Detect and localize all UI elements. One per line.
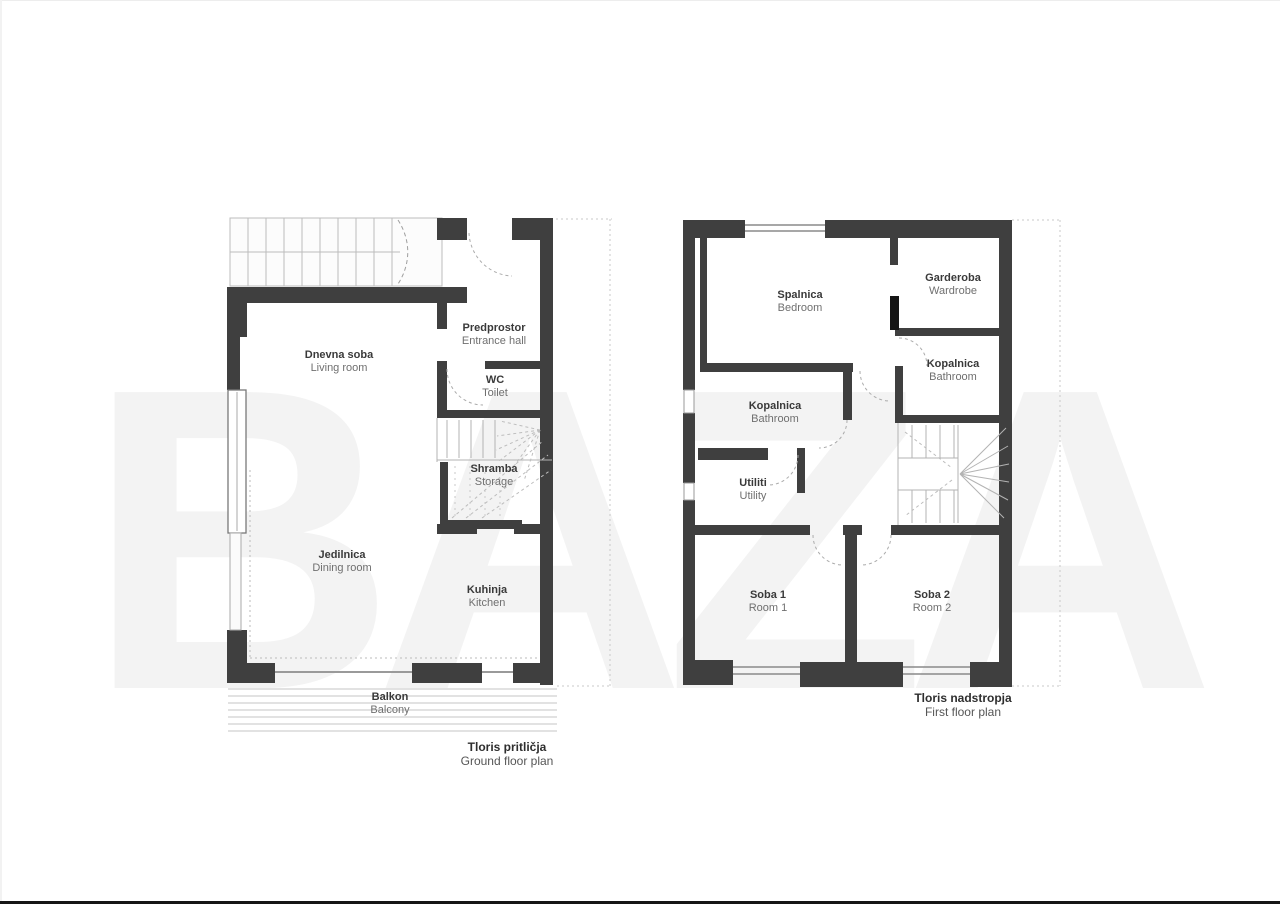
room-label-kitchen: Kuhinja Kitchen bbox=[467, 584, 507, 610]
room-label-bathroom-left: Kopalnica Bathroom bbox=[749, 400, 802, 426]
ground-floor-plan bbox=[227, 218, 612, 731]
exterior-stairs bbox=[230, 218, 442, 286]
first-floor-plan bbox=[683, 220, 1062, 687]
room-label-wardrobe: Garderoba Wardrobe bbox=[925, 272, 981, 298]
flue-element bbox=[890, 296, 899, 330]
room-label-room2: Soba 2 Room 2 bbox=[913, 589, 952, 615]
site-boundary-right bbox=[1012, 220, 1062, 686]
room-label-bathroom-right: Kopalnica Bathroom bbox=[927, 358, 980, 384]
winder-staircase bbox=[898, 423, 1009, 525]
room-label-wc: WC Toilet bbox=[482, 374, 508, 400]
site-boundary-left bbox=[556, 219, 612, 686]
projection-lines bbox=[250, 470, 540, 658]
room-label-room1: Soba 1 Room 1 bbox=[749, 589, 788, 615]
room-label-entrance: Predprostor Entrance hall bbox=[462, 322, 526, 348]
room-label-living: Dnevna soba Living room bbox=[305, 349, 373, 375]
floor-plan-drawing bbox=[0, 0, 1280, 904]
room-label-dining: Jedilnica Dining room bbox=[312, 549, 371, 575]
ground-floor-caption: Tloris pritličja Ground floor plan bbox=[461, 740, 554, 768]
room-label-utility: Utiliti Utility bbox=[739, 477, 767, 503]
ground-floor-walls bbox=[227, 218, 553, 685]
room-label-bedroom: Spalnica Bedroom bbox=[777, 289, 822, 315]
room-label-storage: Shramba Storage bbox=[470, 463, 517, 489]
floor-plan-page: BAZA bbox=[0, 0, 1280, 904]
room-label-balcony: Balkon Balcony bbox=[370, 691, 409, 717]
first-floor-caption: Tloris nadstropja First floor plan bbox=[914, 691, 1011, 719]
